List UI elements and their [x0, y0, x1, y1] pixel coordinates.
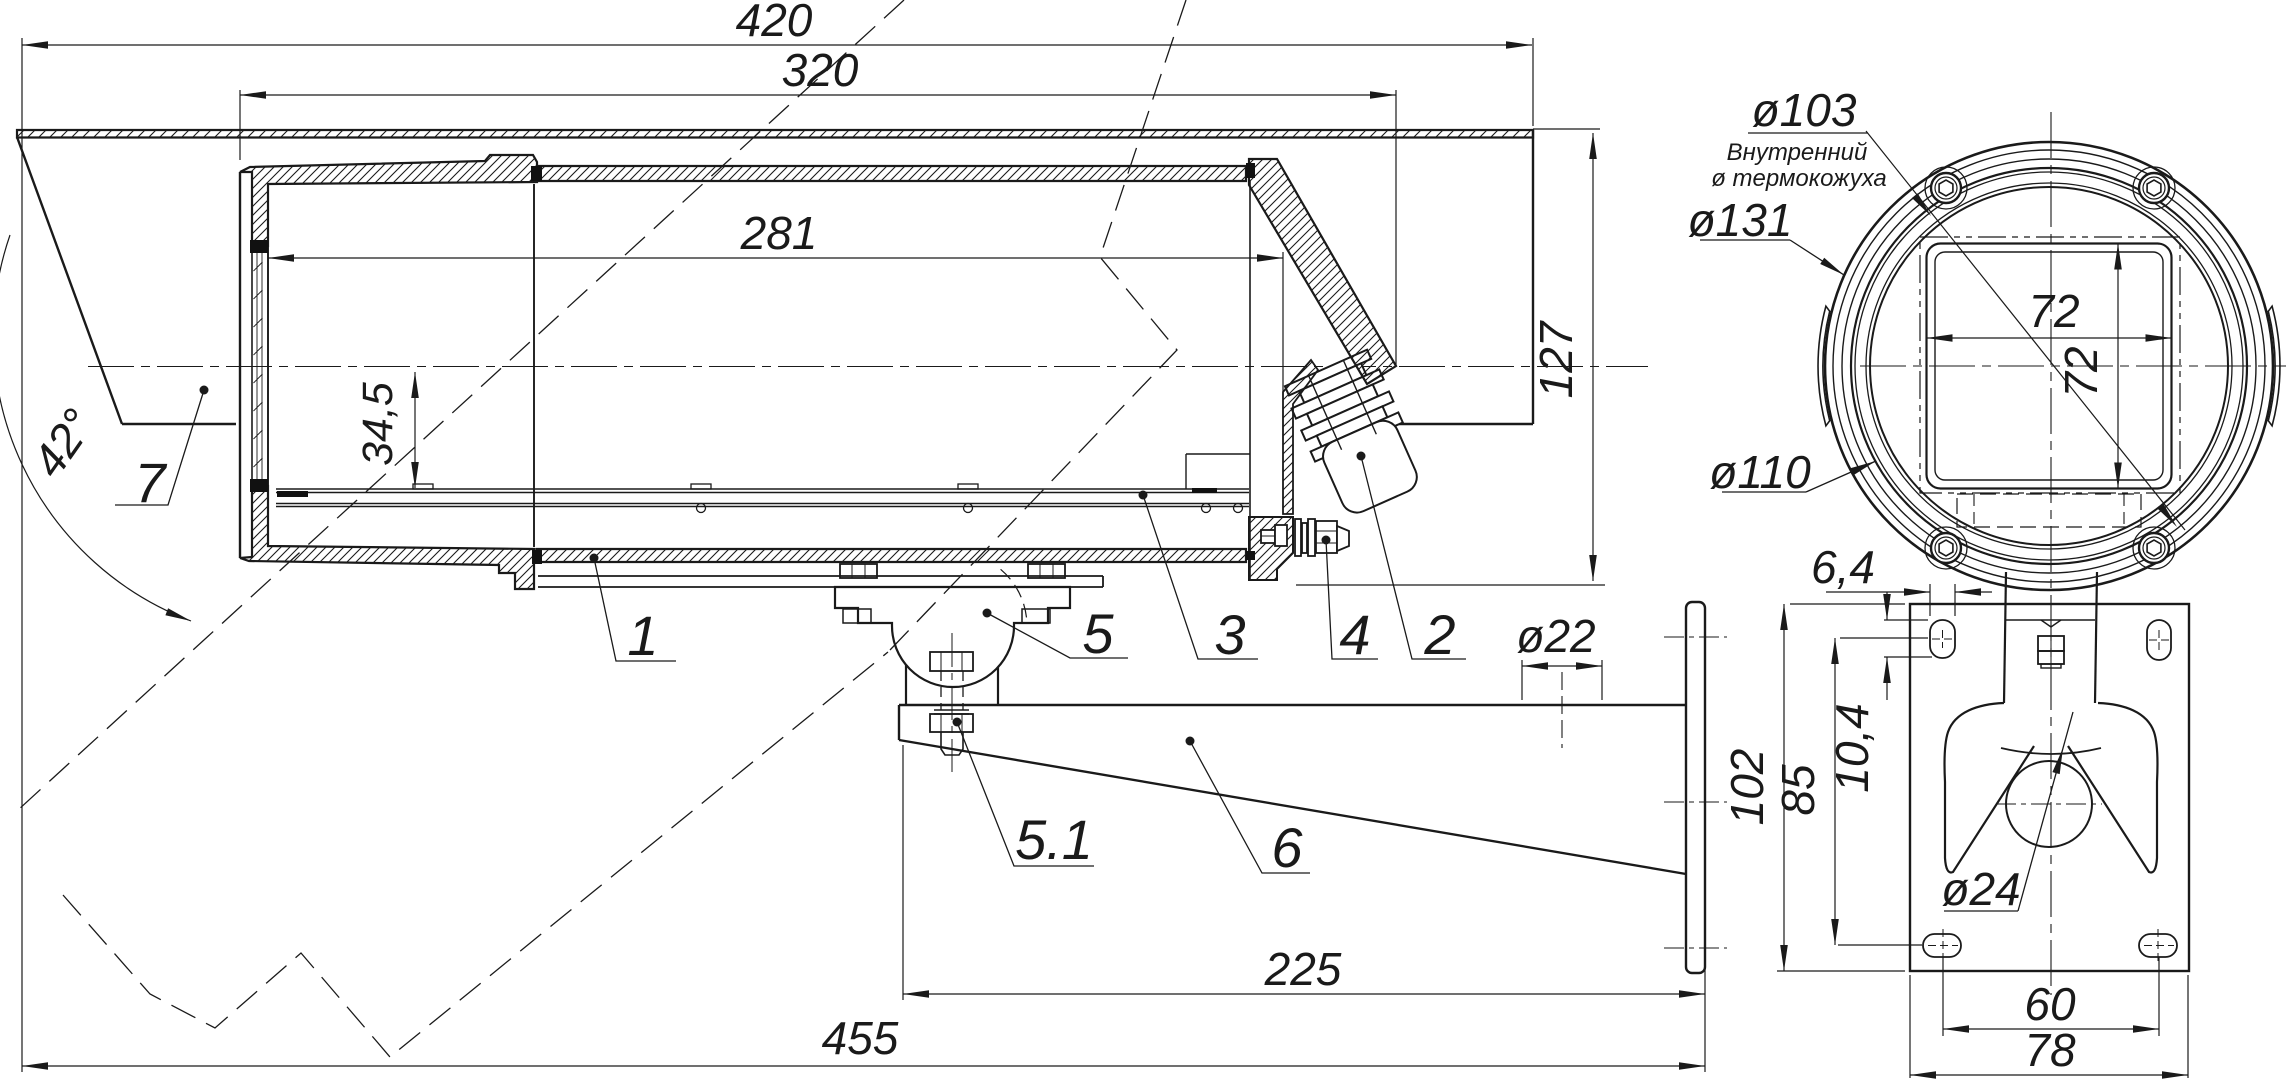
- svg-text:10,4: 10,4: [1826, 703, 1878, 793]
- svg-text:4: 4: [1339, 603, 1370, 666]
- svg-text:6,4: 6,4: [1811, 541, 1875, 593]
- svg-text:127: 127: [1530, 320, 1582, 398]
- svg-text:ø термокожуха: ø термокожуха: [1711, 165, 1887, 192]
- svg-text:6: 6: [1271, 816, 1303, 879]
- svg-text:34,5: 34,5: [354, 381, 402, 466]
- svg-text:7: 7: [134, 451, 167, 514]
- svg-text:ø22: ø22: [1516, 610, 1595, 662]
- svg-text:72: 72: [2028, 285, 2079, 337]
- svg-text:5.1: 5.1: [1015, 808, 1093, 871]
- svg-text:60: 60: [2024, 978, 2076, 1030]
- svg-text:Внутренний: Внутренний: [1727, 139, 1868, 166]
- svg-text:102: 102: [1721, 749, 1773, 826]
- svg-text:78: 78: [2024, 1024, 2076, 1076]
- svg-text:455: 455: [822, 1012, 899, 1064]
- svg-text:5: 5: [1082, 602, 1114, 665]
- svg-text:72: 72: [2055, 346, 2107, 397]
- svg-text:1: 1: [627, 604, 658, 667]
- svg-text:2: 2: [1423, 603, 1455, 666]
- svg-text:ø103: ø103: [1752, 84, 1857, 136]
- svg-text:281: 281: [740, 207, 818, 259]
- svg-text:ø131: ø131: [1688, 194, 1793, 246]
- svg-text:85: 85: [1772, 764, 1824, 816]
- svg-text:ø24: ø24: [1941, 863, 2020, 915]
- svg-text:225: 225: [1264, 943, 1342, 995]
- svg-text:420: 420: [736, 0, 813, 46]
- svg-text:320: 320: [782, 44, 859, 96]
- svg-text:ø110: ø110: [1709, 446, 1811, 498]
- svg-text:3: 3: [1214, 603, 1245, 666]
